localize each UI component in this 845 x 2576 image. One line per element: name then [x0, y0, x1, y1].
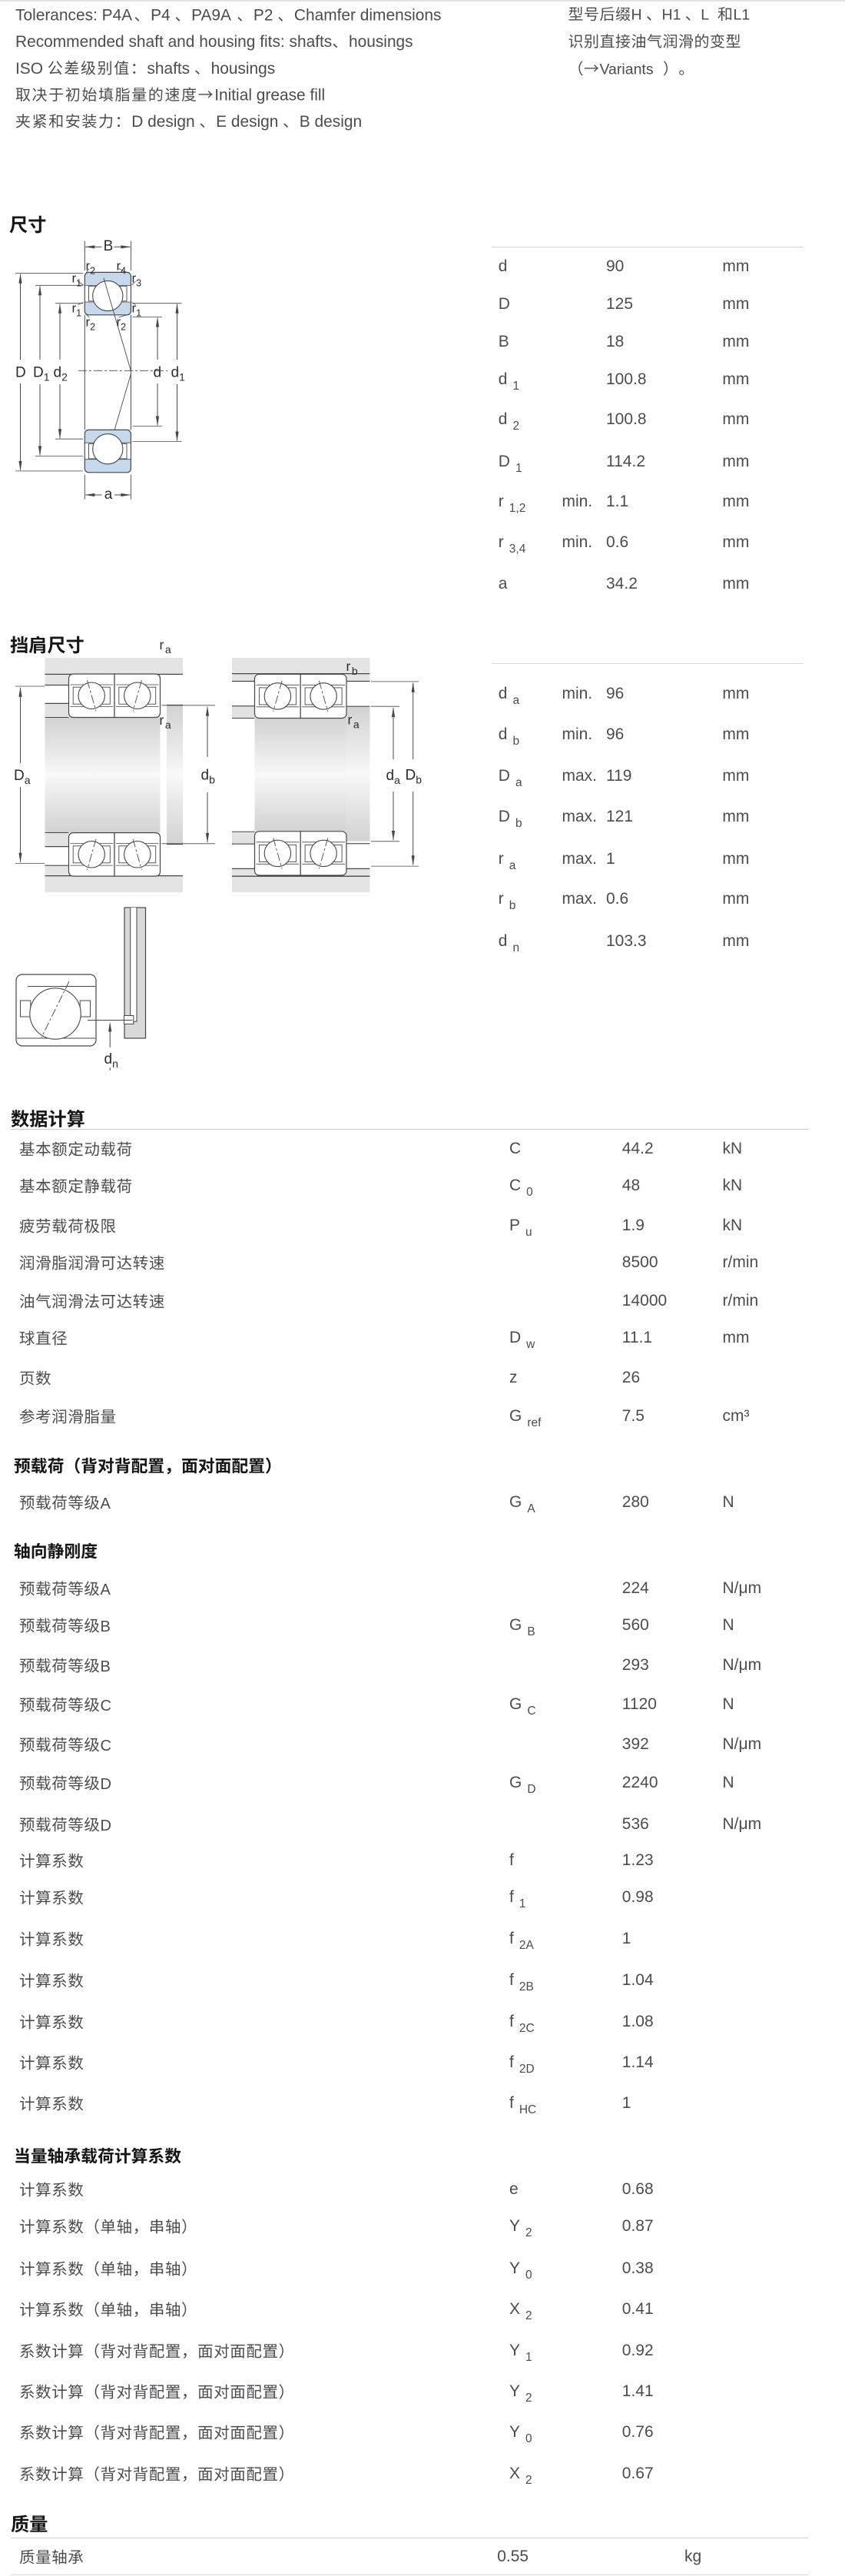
svg-text:da: da: [386, 768, 401, 786]
svg-text:L1: L1: [734, 7, 751, 24]
svg-text:P4: P4: [151, 7, 171, 25]
svg-text:dn: dn: [104, 1051, 118, 1070]
svg-text:B: B: [104, 238, 114, 254]
svg-text:C: C: [101, 1698, 111, 1715]
svg-text:H1: H1: [662, 7, 681, 24]
svg-text:Chamfer dimensions: Chamfer dimensions: [294, 7, 442, 25]
svg-text:P2: P2: [253, 7, 273, 25]
svg-text:Db: Db: [406, 767, 422, 785]
svg-text:B design: B design: [300, 113, 362, 131]
svg-text:ra: ra: [160, 637, 171, 656]
svg-text:B: B: [101, 1658, 111, 1675]
svg-text:A: A: [101, 1495, 111, 1512]
svg-text:d: d: [154, 364, 162, 380]
svg-text:D1: D1: [33, 364, 50, 383]
svg-text:housings: housings: [349, 33, 413, 51]
svg-text:D design: D design: [131, 113, 194, 131]
svg-text:ISO: ISO: [15, 60, 43, 78]
svg-text:r2: r2: [117, 315, 127, 333]
svg-text:r3: r3: [132, 271, 142, 289]
svg-text:L: L: [701, 7, 709, 24]
svg-text:H: H: [631, 7, 642, 24]
svg-text:housings: housings: [211, 60, 276, 78]
svg-text:Da: Da: [14, 768, 31, 786]
svg-text:Recommended shaft and housing: Recommended shaft and housing fits: shaf…: [15, 33, 332, 51]
svg-text:C: C: [101, 1738, 111, 1754]
svg-text:Variants: Variants: [600, 61, 654, 78]
svg-text:shafts: shafts: [147, 60, 190, 78]
svg-text:db: db: [201, 767, 216, 785]
svg-text:d2: d2: [54, 364, 68, 383]
svg-text:D: D: [101, 1817, 111, 1834]
svg-text:PA9A: PA9A: [191, 7, 231, 25]
svg-text:D: D: [101, 1776, 111, 1793]
svg-text:Tolerances: P4A: Tolerances: P4A: [15, 7, 132, 25]
svg-text:D: D: [15, 364, 26, 380]
svg-text:A: A: [101, 1582, 111, 1598]
svg-text:Initial grease fill: Initial grease fill: [214, 86, 325, 104]
svg-text:d1: d1: [171, 364, 186, 383]
svg-text:a: a: [104, 486, 113, 503]
svg-text:E design: E design: [216, 113, 278, 131]
svg-text:r2: r2: [86, 315, 96, 333]
svg-text:B: B: [101, 1618, 111, 1635]
